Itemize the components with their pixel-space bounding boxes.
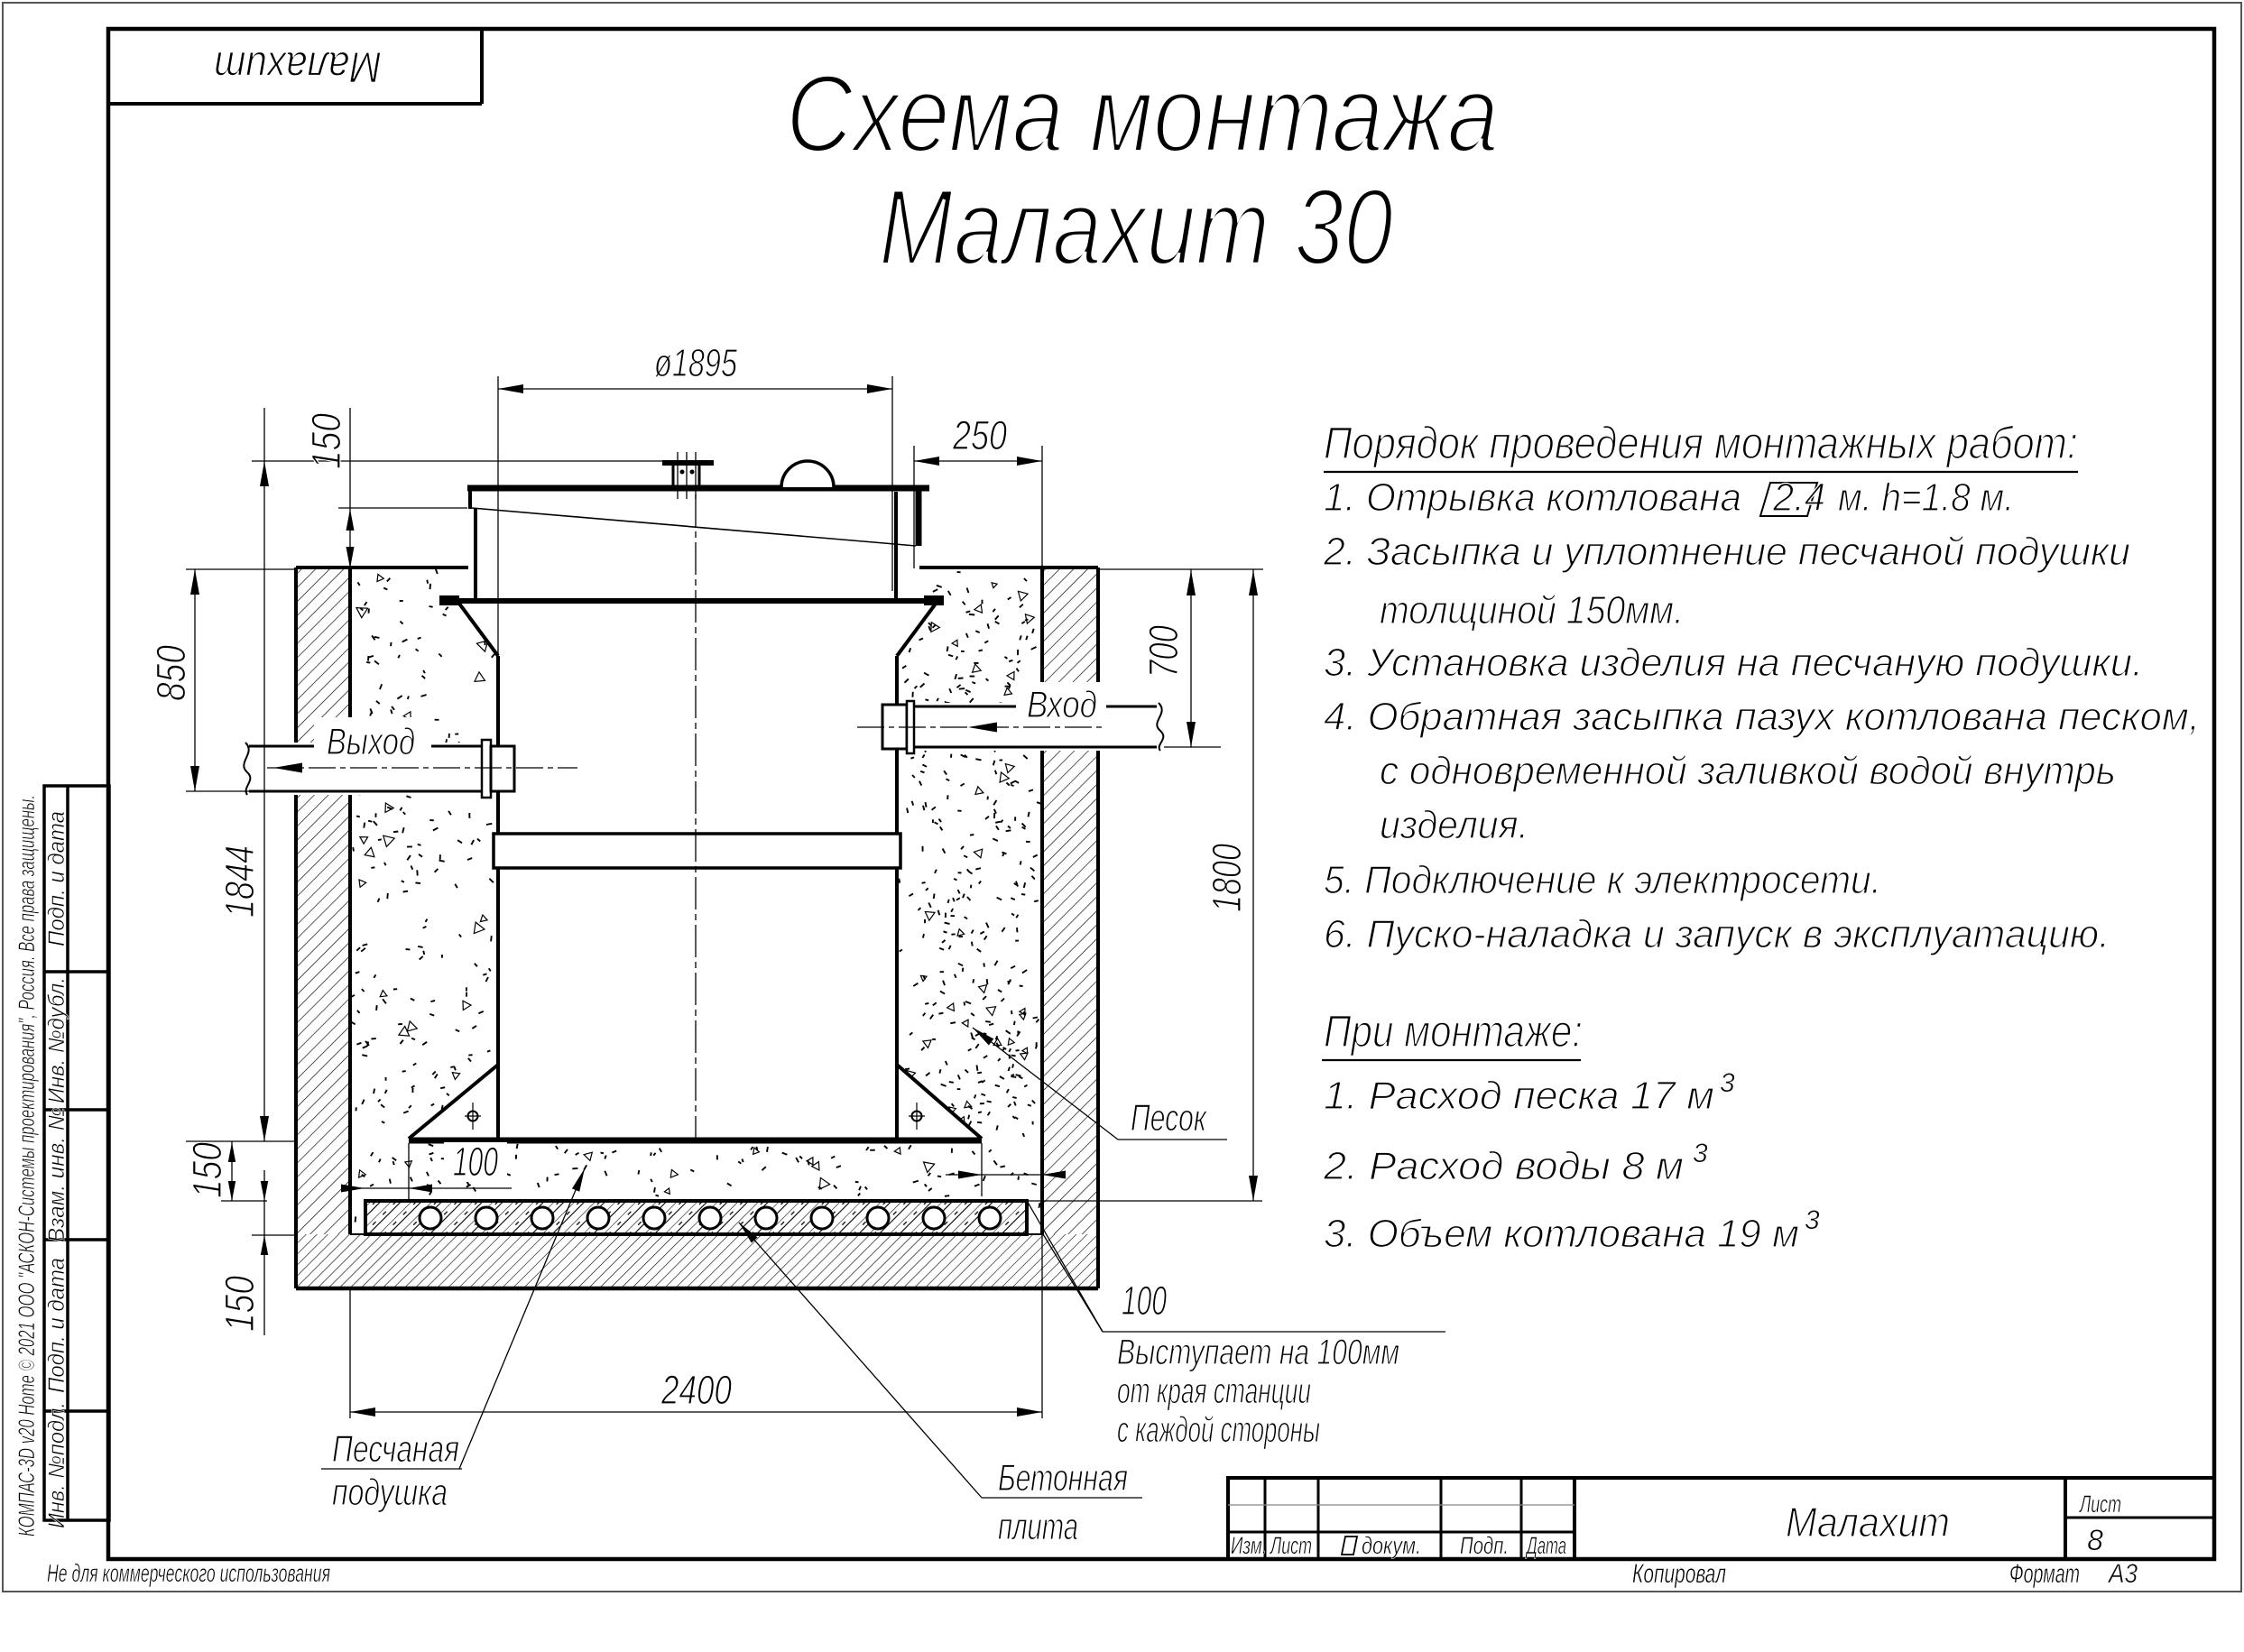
svg-text:А3: А3 [2107, 1559, 2138, 1589]
svg-text:150: 150 [217, 1276, 263, 1332]
svg-text:2400: 2400 [660, 1367, 732, 1413]
svg-text:700: 700 [1140, 625, 1187, 678]
svg-text:Лист: Лист [2079, 1490, 2121, 1518]
svg-text:3. Установка изделия на песчан: 3. Установка изделия на песчаную подушки… [1324, 641, 2143, 685]
svg-text:850: 850 [148, 645, 194, 701]
svg-text:Песок: Песок [1131, 1096, 1208, 1139]
svg-text:Бетонная: Бетонная [998, 1456, 1128, 1499]
svg-text:с каждой стороны: с каждой стороны [1117, 1410, 1320, 1450]
svg-text:Порядок проведения монтажных р: Порядок проведения монтажных работ: [1324, 418, 2078, 468]
svg-text:Дата: Дата [1525, 1532, 1566, 1559]
svg-text:При монтаже:: При монтаже: [1324, 1006, 1583, 1057]
svg-text:Малахит: Малахит [214, 42, 382, 90]
svg-text:5. Подключение к электросети.: 5. Подключение к электросети. [1324, 858, 1881, 902]
svg-text:2.4: 2.4 [1772, 475, 1825, 520]
svg-text:Копировал: Копировал [1632, 1559, 1726, 1589]
svg-text:4. Обратная засыпка пазух котл: 4. Обратная засыпка пазух котлована песк… [1324, 695, 2200, 739]
svg-text:Выход: Выход [327, 720, 415, 762]
svg-text:Малахит 30: Малахит 30 [879, 167, 1393, 288]
svg-text:ø1895: ø1895 [654, 341, 737, 385]
svg-text:150: 150 [184, 1142, 230, 1198]
svg-text:Вход: Вход [1027, 683, 1097, 725]
svg-text:плита: плита [998, 1505, 1078, 1547]
svg-text:1. Отрывка котлована: 1. Отрывка котлована [1324, 475, 1741, 520]
svg-text:3. Объем котлована 19 м: 3. Объем котлована 19 м [1324, 1212, 1799, 1256]
svg-text:толщиной 150мм.: толщиной 150мм. [1380, 588, 1684, 632]
svg-text:Лист: Лист [1270, 1532, 1312, 1559]
svg-text:2. Засыпка и уплотнение песчан: 2. Засыпка и уплотнение песчаной подушки [1323, 530, 2130, 574]
svg-text:м. h=1.8 м.: м. h=1.8 м. [1838, 475, 2014, 520]
svg-text:8: 8 [2087, 1524, 2103, 1556]
svg-text:3: 3 [1805, 1205, 1820, 1235]
svg-text:КОМПАС-3D v20 Home © 2021 ООО: КОМПАС-3D v20 Home © 2021 ООО "АСКОН-Сис… [14, 795, 40, 1537]
svg-text:Подп.: Подп. [1460, 1532, 1509, 1559]
svg-text:150: 150 [303, 413, 349, 469]
svg-text:Изм.: Изм. [1231, 1532, 1267, 1559]
svg-text:100: 100 [1122, 1278, 1167, 1324]
svg-text:Формат: Формат [2009, 1559, 2080, 1589]
svg-text:Взам. инв. №: Взам. инв. № [44, 1107, 69, 1242]
svg-text:2. Расход воды 8 м: 2. Расход воды 8 м [1323, 1144, 1684, 1188]
svg-text:Подп. и дата: Подп. и дата [44, 1258, 69, 1393]
svg-text:Инв. №подл.: Инв. №подл. [44, 1402, 69, 1528]
svg-text:докум.: докум. [1362, 1532, 1421, 1559]
svg-text:1. Расход песка 17 м: 1. Расход песка 17 м [1324, 1074, 1714, 1118]
svg-text:Инв. №дубл.: Инв. №дубл. [44, 977, 69, 1103]
svg-text:1800: 1800 [1204, 844, 1250, 912]
svg-text:подушка: подушка [332, 1471, 448, 1513]
svg-text:100: 100 [453, 1139, 498, 1185]
svg-text:с одновременной заливкой водой: с одновременной заливкой водой внутрь [1380, 749, 2116, 793]
svg-text:Схема монтажа: Схема монтажа [786, 52, 1499, 175]
svg-text:250: 250 [952, 412, 1007, 458]
svg-text:Подп. и дата: Подп. и дата [44, 811, 69, 946]
svg-text:Песчаная: Песчаная [332, 1427, 459, 1470]
svg-text:Малахит: Малахит [1786, 1499, 1950, 1546]
svg-text:1844: 1844 [217, 845, 263, 918]
svg-text:Выступает на 100мм: Выступает на 100мм [1117, 1333, 1399, 1372]
svg-text:3: 3 [1693, 1139, 1708, 1168]
svg-text:изделия.: изделия. [1380, 803, 1528, 847]
svg-text:Не для коммерческого использов: Не для коммерческого использования [47, 1559, 330, 1587]
svg-text:3: 3 [1720, 1068, 1735, 1098]
svg-text:6. Пуско-наладка и запуск в эк: 6. Пуско-наладка и запуск в эксплуатацию… [1324, 912, 2110, 956]
svg-text:от края станции: от края станции [1117, 1371, 1311, 1411]
